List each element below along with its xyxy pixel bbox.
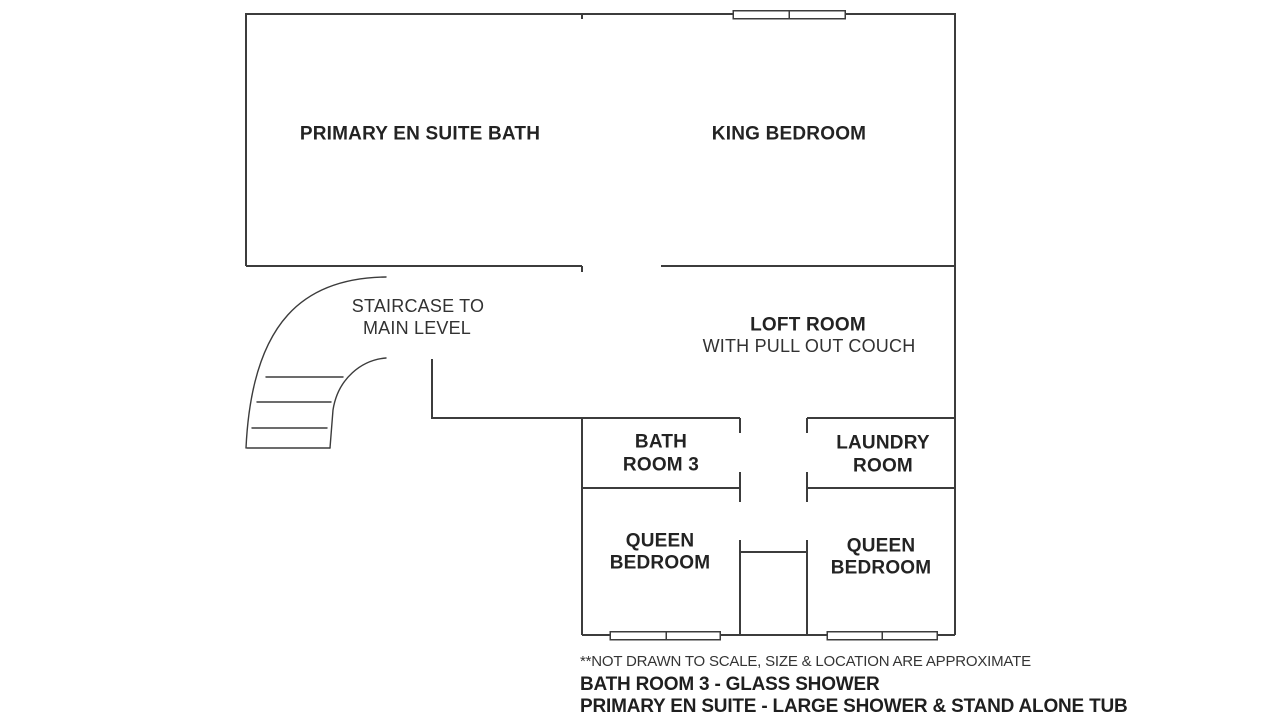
bottom-right-window xyxy=(827,632,937,640)
room-label-loft-room: LOFT ROOM xyxy=(750,316,866,335)
room-label-king-bedroom: KING BEDROOM xyxy=(712,125,866,144)
room-label-bath-room-3-line2: ROOM 3 xyxy=(623,456,699,475)
disclaimer-note: **NOT DRAWN TO SCALE, SIZE & LOCATION AR… xyxy=(580,654,1031,669)
room-label-queen-bedroom-left-line1: QUEEN xyxy=(626,532,695,551)
bottom-left-window xyxy=(610,632,720,640)
primary-en-suite-note: PRIMARY EN SUITE - LARGE SHOWER & STAND … xyxy=(580,697,1128,716)
room-label-bath-room-3-line1: BATH xyxy=(635,433,687,452)
room-label-queen-bedroom-right-line1: QUEEN xyxy=(847,537,916,556)
bath-room-3-note: BATH ROOM 3 - GLASS SHOWER xyxy=(580,675,880,694)
floor-plan-page: PRIMARY EN SUITE BATH KING BEDROOM STAIR… xyxy=(0,0,1280,720)
staircase-inner-arc xyxy=(330,358,386,448)
room-label-primary-en-suite-bath: PRIMARY EN SUITE BATH xyxy=(300,125,540,144)
room-label-queen-bedroom-right-line2: BEDROOM xyxy=(831,559,932,578)
room-label-laundry-line2: ROOM xyxy=(853,457,913,476)
loft-wall xyxy=(432,359,740,418)
room-label-queen-bedroom-left-line2: BEDROOM xyxy=(610,554,711,573)
suite-bottom-wall-left xyxy=(246,266,582,272)
floor-plan-drawing xyxy=(0,0,1280,720)
staircase-label-line2: MAIN LEVEL xyxy=(363,319,471,337)
staircase-label-line1: STAIRCASE TO xyxy=(352,297,484,315)
loft-subtitle: WITH PULL OUT COUCH xyxy=(703,337,916,355)
top-window xyxy=(733,11,845,19)
room-label-laundry-line1: LAUNDRY xyxy=(836,434,930,453)
